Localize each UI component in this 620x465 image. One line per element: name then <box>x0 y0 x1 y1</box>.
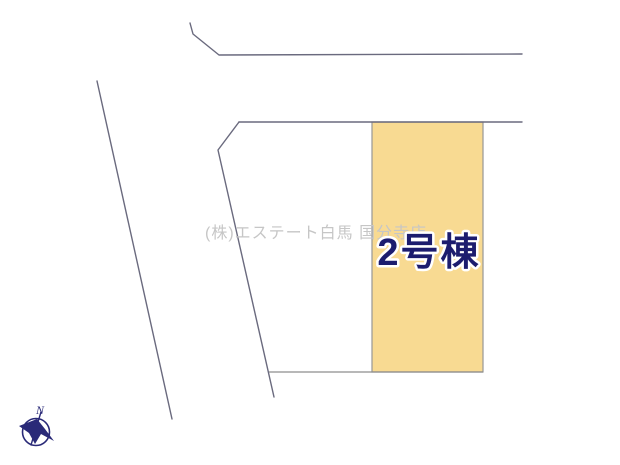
site-plan-image: (株)エステート白馬 国分寺店 2号棟 N <box>0 0 620 465</box>
compass-north-label: N <box>35 403 45 417</box>
unit-2-label: 2号棟 <box>377 232 480 274</box>
road-line-top <box>190 23 522 55</box>
road-line-left <box>97 81 172 419</box>
site-plan-canvas: (株)エステート白馬 国分寺店 2号棟 N <box>0 0 620 465</box>
parcel-left-boundary <box>218 122 274 397</box>
compass-north-arrow: N <box>19 403 54 446</box>
